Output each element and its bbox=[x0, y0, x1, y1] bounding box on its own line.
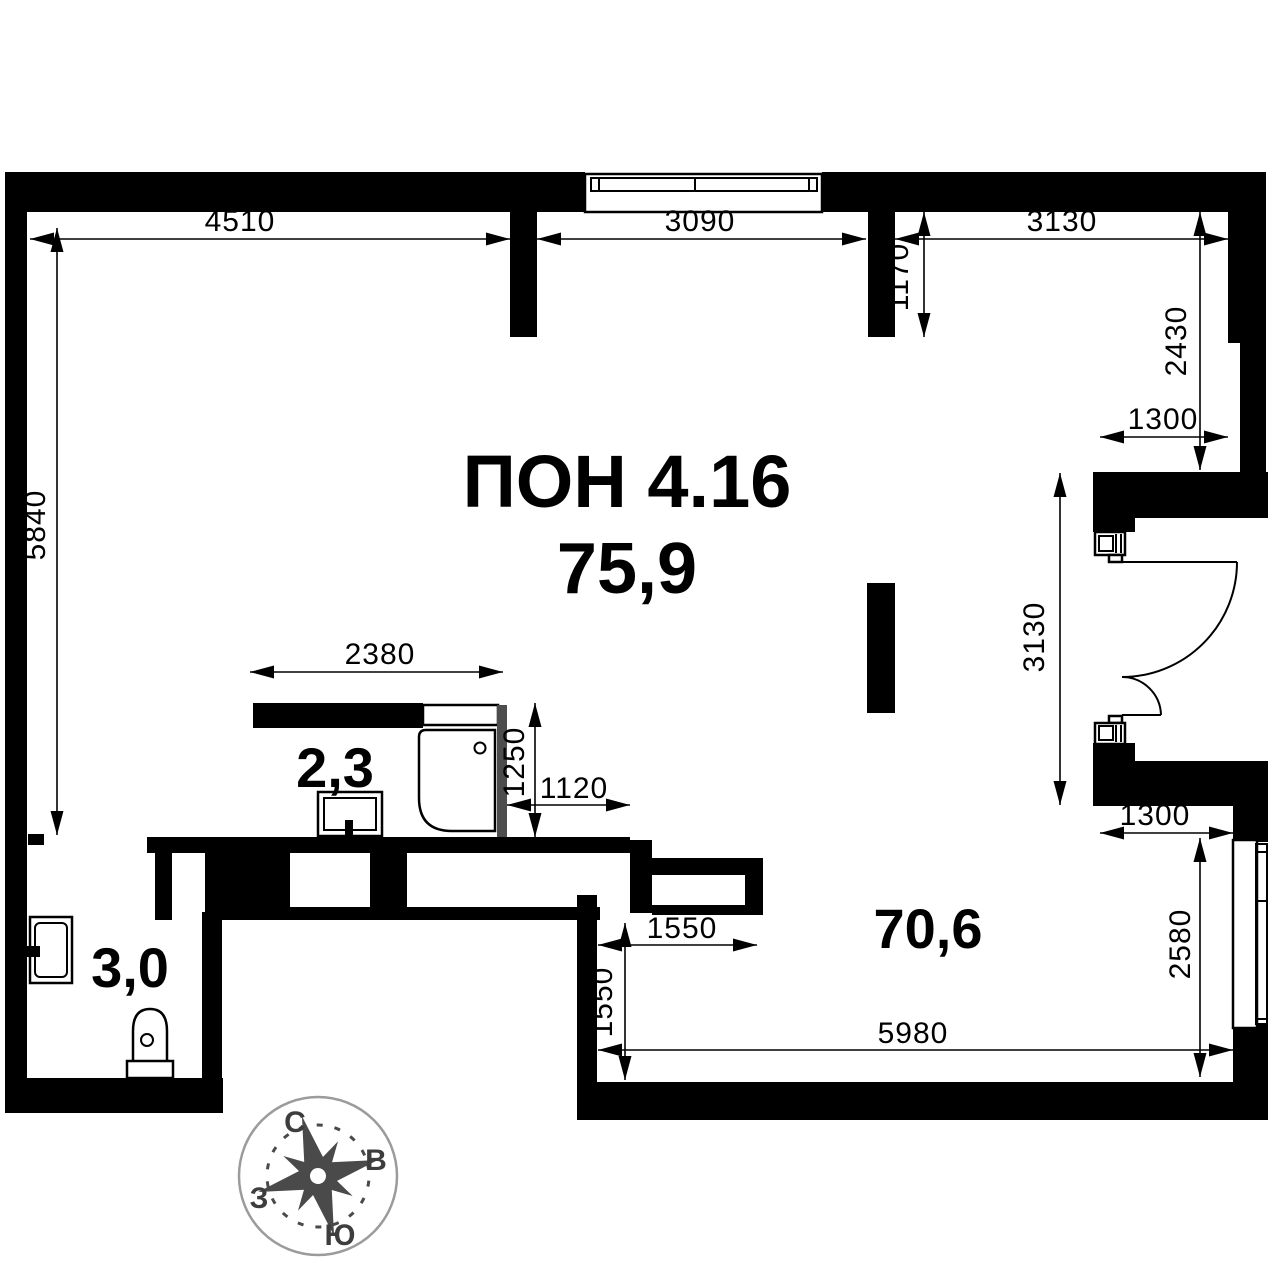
dim-label: 1300 bbox=[1120, 799, 1191, 832]
column-center bbox=[867, 583, 895, 713]
wall-band-lower-strip-a bbox=[155, 907, 172, 920]
wall-left bbox=[5, 172, 27, 1113]
compass-south-label: Ю bbox=[325, 1219, 356, 1252]
wall-bath-counter bbox=[253, 703, 423, 728]
dim-label: 3130 bbox=[1027, 205, 1098, 238]
dim-label: 1170 bbox=[882, 243, 915, 312]
wall-stub-window-left bbox=[510, 206, 537, 337]
wall-above-right-window bbox=[1233, 806, 1268, 842]
floor-plan-drawing: 4510 3090 3130 1170 2430 1300 3130 1300 bbox=[0, 0, 1280, 1280]
shower-top-rail bbox=[423, 705, 498, 725]
wall-tick-square bbox=[28, 834, 44, 845]
wall-step-door-top bbox=[1093, 518, 1135, 532]
compass-west-label: З bbox=[250, 1182, 269, 1215]
wall-pier-3 bbox=[370, 853, 407, 909]
window-right-sill bbox=[1233, 840, 1257, 1028]
wall-bottom-right bbox=[577, 1082, 1268, 1120]
unit-code-label: ПОН 4.16 bbox=[463, 440, 792, 523]
wall-wc-right bbox=[202, 912, 222, 1083]
compass-east-label: В bbox=[365, 1144, 387, 1177]
dim-label: 4510 bbox=[205, 205, 276, 238]
dim-label: 5840 bbox=[19, 490, 52, 561]
dim-label: 5980 bbox=[878, 1017, 949, 1050]
wall-pier-1 bbox=[155, 853, 172, 911]
wall-right-upper bbox=[1228, 172, 1266, 343]
dim-label: 2580 bbox=[1164, 909, 1197, 980]
dim-label: 1300 bbox=[1128, 403, 1199, 436]
wall-block-door-top bbox=[1093, 472, 1268, 518]
toilet-tank bbox=[127, 1061, 173, 1078]
wall-band-lower-strip-b bbox=[205, 907, 600, 920]
dim-label: 1550 bbox=[586, 967, 619, 1038]
wall-pier-2 bbox=[205, 853, 290, 909]
wall-top-left bbox=[5, 172, 585, 212]
unit-area-label: 75,9 bbox=[557, 529, 697, 609]
wc-area-label: 3,0 bbox=[91, 936, 169, 999]
wall-shaft-left bbox=[630, 840, 652, 913]
floor-plan-page: 4510 3090 3130 1170 2430 1300 3130 1300 bbox=[0, 0, 1280, 1280]
dim-label: 2430 bbox=[1160, 306, 1193, 377]
dim-label: 2380 bbox=[345, 638, 416, 671]
door-jamb-upper bbox=[1109, 555, 1122, 562]
wc-basin-tap bbox=[22, 946, 40, 957]
dim-label: 1250 bbox=[498, 727, 531, 798]
dim-label: 1120 bbox=[540, 772, 609, 805]
dim-label: 3090 bbox=[665, 205, 736, 238]
wall-step-door-bottom bbox=[1093, 743, 1135, 761]
wall-bottom-left bbox=[5, 1078, 223, 1113]
bath-sink-tap bbox=[345, 820, 353, 836]
main-area-label: 70,6 bbox=[874, 897, 983, 960]
dim-label: 1550 bbox=[647, 912, 718, 945]
dim-label: 3130 bbox=[1018, 602, 1051, 673]
compass-hub bbox=[304, 1162, 332, 1190]
compass-north-label: С bbox=[284, 1106, 306, 1139]
bathroom-area-label: 2,3 bbox=[296, 736, 374, 799]
wall-right-mid bbox=[1240, 343, 1266, 472]
wall-band-upper-strip bbox=[147, 837, 630, 853]
